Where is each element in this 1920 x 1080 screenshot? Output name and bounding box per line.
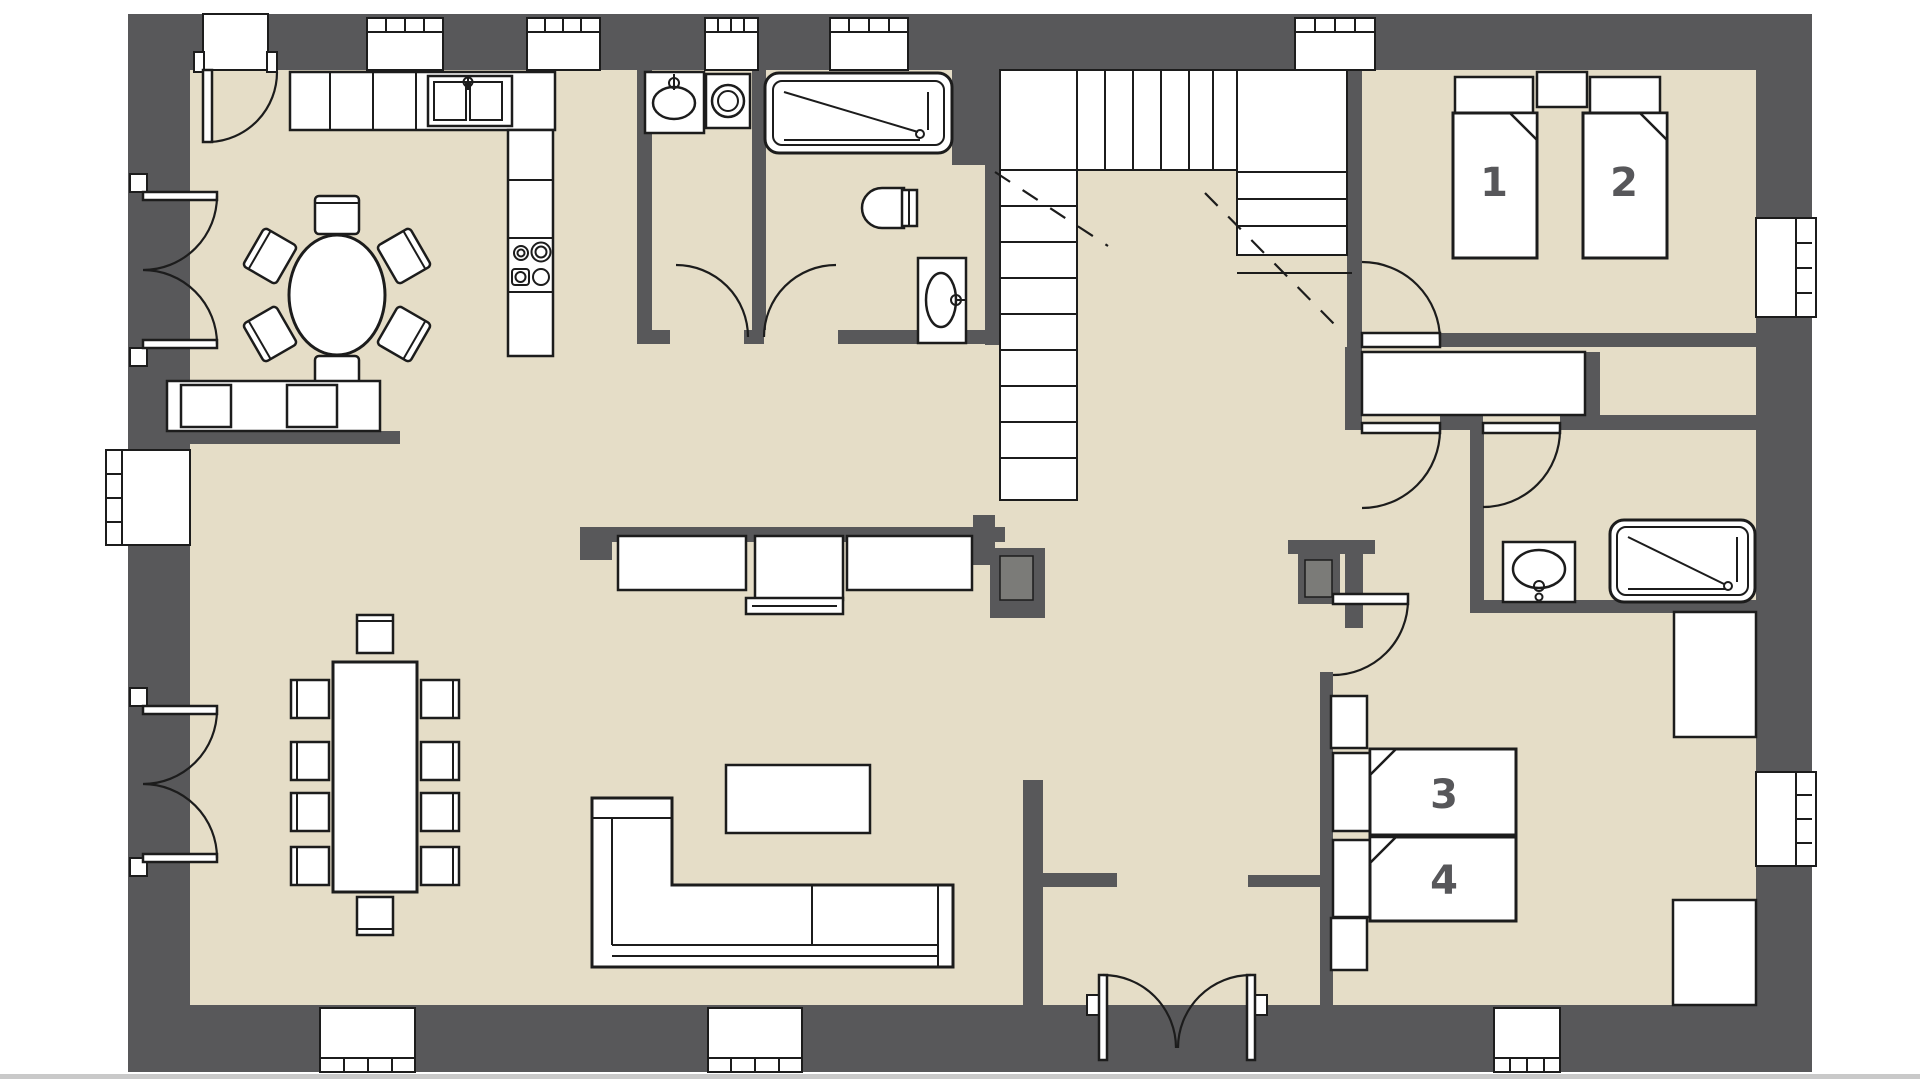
pillow (1333, 840, 1370, 917)
bed-4-label: 4 (1430, 858, 1458, 904)
cushion (181, 385, 231, 427)
bathroom-right-sink (1503, 542, 1575, 602)
entry-wall-left (1023, 780, 1043, 1005)
window (708, 1008, 802, 1072)
kitchen-sink (428, 76, 512, 126)
door-leaf (143, 854, 217, 862)
round-dining-table (289, 235, 385, 355)
door-leaf (143, 706, 217, 714)
floor-plan-drawing: 1 2 3 4 (0, 0, 1920, 1080)
door-leaf (1247, 975, 1255, 1060)
bathtub (765, 73, 952, 153)
door-leaf (1099, 975, 1107, 1060)
bed-2: 2 (1583, 77, 1667, 258)
bed-1: 1 (1453, 77, 1537, 258)
window (705, 18, 758, 70)
window (1494, 1008, 1560, 1072)
cushion (287, 385, 337, 427)
window (320, 1008, 415, 1072)
nightstand (1331, 918, 1367, 970)
nightstand (1537, 72, 1587, 107)
toilet (862, 188, 917, 228)
door-leaf (1483, 423, 1560, 433)
pillow (1333, 753, 1370, 831)
door-leaf (143, 340, 217, 348)
dining-chair (315, 196, 359, 234)
pillow (1590, 77, 1660, 113)
screen-bottom-strip (0, 1074, 1920, 1079)
laundry-sink (645, 72, 704, 133)
window-left-wall (106, 450, 190, 545)
wardrobe (1674, 612, 1756, 737)
bed-3: 3 (1333, 749, 1516, 835)
bathroom-wall-left (1470, 430, 1484, 613)
bed-1-label: 1 (1480, 160, 1508, 206)
floor-plan-page: 1 2 3 4 (0, 0, 1920, 1080)
bed-2-label: 2 (1610, 160, 1638, 206)
bed-4: 4 (1333, 837, 1516, 921)
window (830, 18, 908, 70)
window (1295, 18, 1375, 70)
washing-machine (706, 74, 750, 128)
low-wall (163, 431, 400, 444)
door-leaf (1333, 594, 1408, 604)
pillow (1455, 77, 1533, 113)
long-dining-table (333, 662, 417, 892)
wardrobe (1673, 900, 1756, 1005)
door-leaf (143, 192, 217, 200)
washbasin (918, 258, 966, 343)
bench-group (163, 381, 400, 444)
hall-closet (1362, 352, 1585, 415)
door-leaf (1362, 423, 1440, 433)
window (1756, 772, 1816, 866)
nightstand (1331, 696, 1367, 748)
window (527, 18, 600, 70)
chimney-left (990, 548, 1045, 618)
window (1756, 218, 1816, 317)
window (367, 18, 443, 70)
door-leaf (1362, 333, 1440, 347)
wall-right (1756, 14, 1812, 1072)
bed-3-label: 3 (1430, 772, 1458, 818)
door-leaf (203, 70, 212, 142)
shower (1610, 520, 1755, 602)
coffee-table (726, 765, 870, 833)
